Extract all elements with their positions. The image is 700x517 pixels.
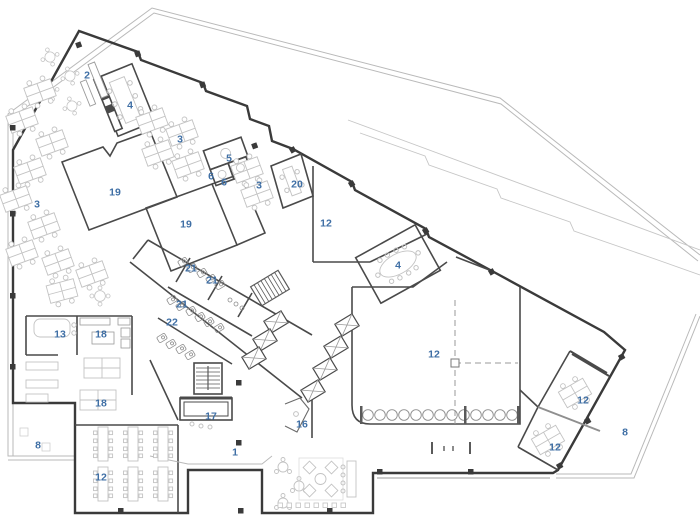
room-label-2-0: 2 <box>84 70 90 82</box>
room-label-6-4: 6 <box>208 171 214 183</box>
room-label-6-5: 6 <box>221 177 227 189</box>
room-label-17-20: 17 <box>205 411 217 423</box>
room-label-18-19: 18 <box>95 398 107 410</box>
room-label-20-7: 20 <box>291 179 303 191</box>
room-label-3-6: 3 <box>256 180 262 192</box>
room-label-8-23: 8 <box>35 440 41 452</box>
room-label-12-22: 12 <box>428 349 440 361</box>
room-label-18-18: 18 <box>95 329 107 341</box>
room-label-19-9: 19 <box>180 219 192 231</box>
stair-a <box>251 270 290 305</box>
room-label-5-3: 5 <box>226 153 232 165</box>
room-label-22-15: 22 <box>166 317 178 329</box>
floor-plan-drawing: 2435663201919123212121224131818171612811… <box>0 0 700 517</box>
room-label-4-1: 4 <box>127 100 133 112</box>
room-label-12-10: 12 <box>320 218 332 230</box>
scale-marks <box>432 442 470 454</box>
movable-partition-dashed <box>451 300 518 424</box>
room-label-12-27: 12 <box>549 442 561 454</box>
elevator-bank-right <box>301 314 359 402</box>
room-labels: 2435663201919123212121224131818171612811… <box>34 70 628 484</box>
room-label-4-16: 4 <box>395 260 401 272</box>
room-label-3-11: 3 <box>34 199 40 211</box>
room-label-21-13: 21 <box>206 275 218 287</box>
floor-plan-canvas: 2435663201919123212121224131818171612811… <box>0 0 700 517</box>
room-label-19-8: 19 <box>109 187 121 199</box>
stair-b <box>196 366 220 390</box>
room-label-16-21: 16 <box>296 419 308 431</box>
room-label-3-2: 3 <box>177 134 183 146</box>
room-label-12-25: 12 <box>95 472 107 484</box>
room-label-1-24: 1 <box>232 447 238 459</box>
hall-chair-row <box>360 406 520 424</box>
room-label-12-26: 12 <box>577 395 589 407</box>
room-label-21-14: 21 <box>176 299 188 311</box>
room-label-13-17: 13 <box>54 329 66 341</box>
room-label-21-12: 21 <box>185 263 197 275</box>
elevator-bank-left <box>242 311 288 369</box>
room-label-8-28: 8 <box>622 427 628 439</box>
